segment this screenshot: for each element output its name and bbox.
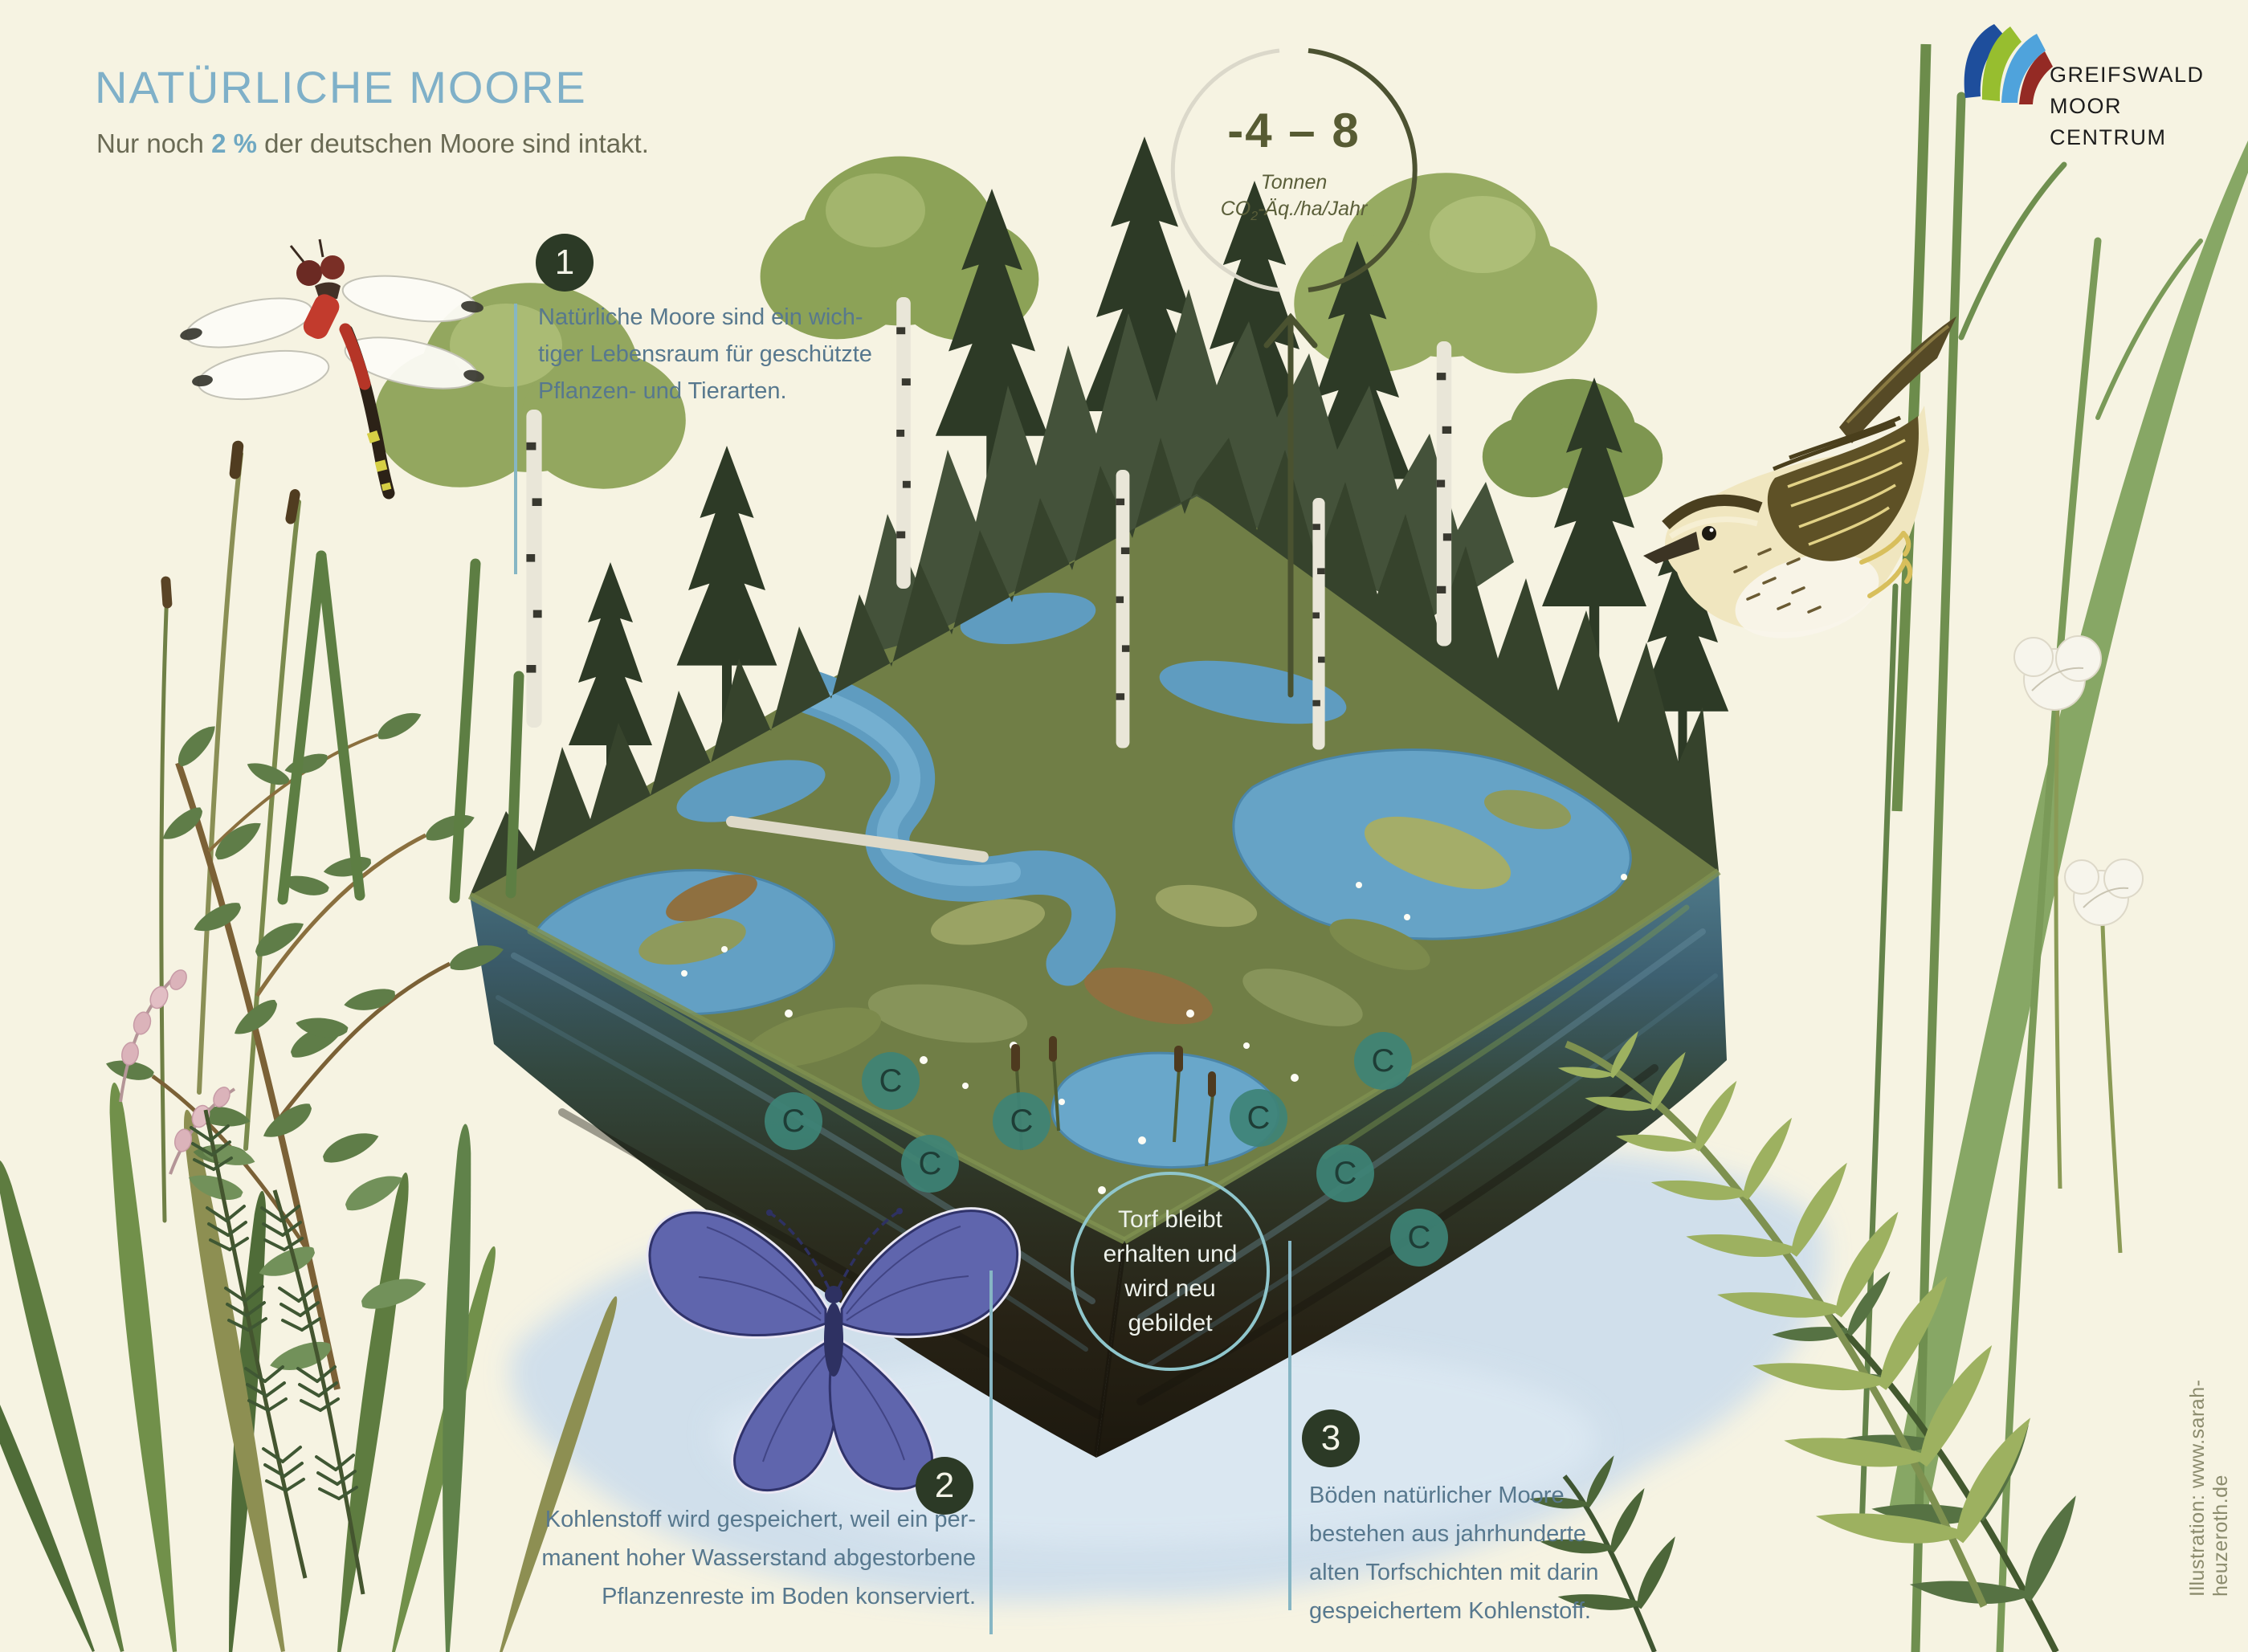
step-3-number: 3 (1321, 1418, 1340, 1458)
carbon-marker: C (993, 1092, 1051, 1150)
subtitle-suffix: der deutschen Moore sind intakt. (257, 128, 649, 158)
emission-value: -4 – 8 (1157, 103, 1430, 158)
carbon-marker: C (1316, 1144, 1374, 1202)
step-3-text: Böden natürlicher Moore bestehen aus jah… (1309, 1476, 1679, 1630)
page-title: NATÜRLICHE MOORE (95, 61, 587, 113)
carbon-marker: C (901, 1135, 959, 1193)
step-1-number-badge: 1 (536, 234, 594, 292)
emission-badge: -4 – 8 Tonnen CO2-Äq./ha/Jahr (1157, 103, 1430, 230)
greifswald-moor-centrum-logo-icon (1964, 24, 2053, 104)
page-subtitle: Nur noch 2 % der deutschen Moore sind in… (96, 128, 649, 159)
carbon-marker: C (1354, 1032, 1412, 1090)
step-2-text: Kohlenstoff wird gespeichert, weil ein p… (462, 1500, 976, 1616)
moor-infographic-illustration (0, 0, 2248, 1652)
subtitle-prefix: Nur noch (96, 128, 211, 158)
illustrator-credit: Illustration: www.sarah-heuzeroth.de (2186, 1259, 2233, 1597)
emission-unit-line2: CO2-Äq./ha/Jahr (1157, 196, 1430, 230)
carbon-marker: C (765, 1092, 822, 1150)
subtitle-stat: 2 % (211, 128, 257, 158)
step-1-text: Natürliche Moore sind ein wich- tiger Le… (538, 299, 908, 410)
greifswald-moor-centrum-logo-text: GREIFSWALD MOOR CENTRUM (2050, 59, 2205, 153)
peat-note-circle: Torf bleibt erhalten und wird neu gebild… (1071, 1172, 1270, 1371)
emission-unit-line1: Tonnen (1157, 169, 1430, 196)
carbon-marker: C (862, 1052, 920, 1110)
carbon-marker: C (1390, 1209, 1448, 1267)
carbon-marker: C (1230, 1089, 1287, 1147)
step-2-number-badge: 2 (916, 1457, 973, 1515)
step-2-number: 2 (935, 1466, 954, 1506)
step-3-number-badge: 3 (1302, 1409, 1360, 1467)
step-1-number: 1 (555, 243, 574, 283)
